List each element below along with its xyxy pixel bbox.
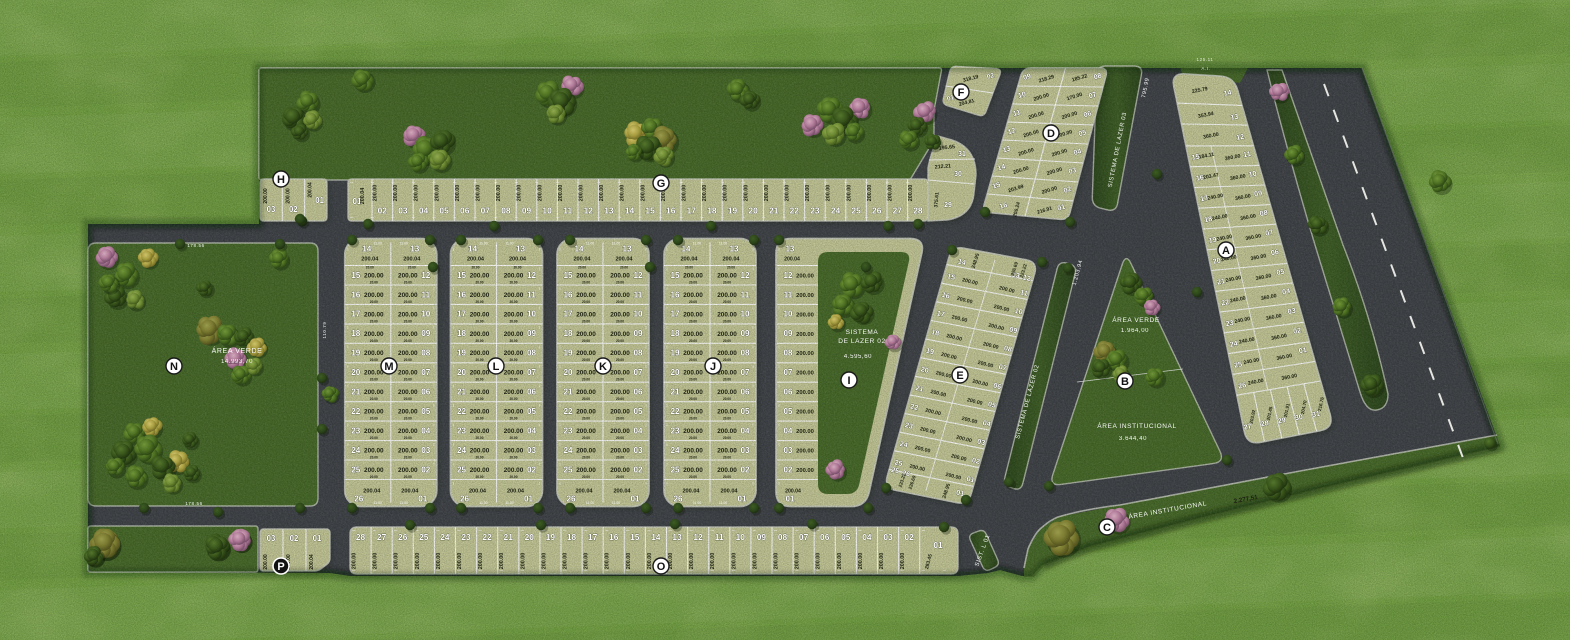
svg-text:20.00: 20.00 [404, 280, 412, 284]
svg-text:200.04: 200.04 [469, 489, 487, 495]
svg-text:10: 10 [633, 310, 643, 319]
svg-text:200.00: 200.00 [398, 409, 418, 416]
svg-text:4.595,60: 4.595,60 [844, 354, 872, 360]
svg-text:200.00: 200.00 [626, 553, 632, 570]
svg-text:200.00: 200.00 [499, 553, 505, 570]
svg-text:20.00: 20.00 [723, 280, 731, 284]
svg-text:27: 27 [377, 532, 387, 542]
svg-text:20.00: 20.00 [689, 397, 697, 401]
svg-text:200.00: 200.00 [576, 448, 596, 455]
svg-text:200.00: 200.00 [576, 389, 596, 396]
svg-text:200.00: 200.00 [478, 553, 484, 570]
svg-text:09: 09 [740, 329, 750, 338]
svg-text:06: 06 [527, 388, 537, 397]
svg-text:20.00: 20.00 [476, 300, 484, 304]
svg-text:20.00: 20.00 [582, 319, 590, 323]
svg-text:17: 17 [588, 532, 598, 542]
svg-text:200.00: 200.00 [517, 185, 523, 202]
svg-text:200.00: 200.00 [364, 292, 384, 299]
svg-text:20.00: 20.00 [689, 417, 697, 421]
svg-text:1.964,00: 1.964,00 [1121, 328, 1149, 334]
svg-text:13: 13 [729, 245, 739, 254]
svg-text:09: 09 [1253, 188, 1263, 198]
svg-text:20: 20 [563, 368, 573, 377]
svg-text:20.00: 20.00 [370, 456, 378, 460]
svg-text:200.00: 200.00 [504, 448, 524, 455]
svg-text:16: 16 [457, 290, 467, 299]
svg-text:20.00: 20.00 [476, 358, 484, 362]
svg-text:20.00: 20.00 [582, 300, 590, 304]
svg-text:01: 01 [524, 495, 534, 504]
svg-text:M: M [384, 361, 393, 373]
svg-text:21: 21 [670, 388, 680, 397]
svg-text:20.00: 20.00 [616, 358, 624, 362]
svg-text:20.00: 20.00 [723, 417, 731, 421]
svg-text:24: 24 [563, 446, 573, 455]
svg-text:200.00: 200.00 [717, 272, 737, 279]
svg-text:12: 12 [527, 271, 537, 280]
svg-text:06: 06 [820, 532, 830, 542]
svg-text:03: 03 [267, 205, 276, 214]
svg-text:20.00: 20.00 [616, 397, 624, 401]
svg-text:200.00: 200.00 [683, 272, 703, 279]
svg-text:24: 24 [1229, 339, 1239, 349]
svg-text:21: 21 [457, 388, 467, 397]
svg-text:10: 10 [421, 310, 431, 319]
svg-text:20.00: 20.00 [616, 417, 624, 421]
svg-text:200.00: 200.00 [470, 292, 490, 299]
svg-text:15: 15 [630, 532, 640, 542]
svg-text:20.00: 20.00 [616, 436, 624, 440]
svg-text:200.00: 200.00 [504, 428, 524, 435]
svg-text:200.00: 200.00 [476, 185, 482, 202]
svg-text:20.00: 20.00 [404, 397, 412, 401]
svg-text:200.00: 200.00 [858, 553, 864, 570]
svg-text:20.00: 20.00 [472, 266, 480, 270]
svg-text:01: 01 [418, 495, 428, 504]
svg-text:20.00: 20.00 [689, 319, 697, 323]
svg-text:200.00: 200.00 [415, 553, 421, 570]
svg-text:200.00: 200.00 [647, 553, 653, 570]
svg-text:06: 06 [1270, 247, 1280, 257]
svg-text:20.00: 20.00 [616, 456, 624, 460]
svg-text:06: 06 [784, 388, 793, 397]
svg-text:10: 10 [740, 310, 750, 319]
svg-text:02: 02 [527, 465, 537, 474]
svg-text:200.00: 200.00 [610, 467, 630, 474]
svg-text:20.00: 20.00 [582, 339, 590, 343]
svg-text:200.00: 200.00 [752, 553, 758, 570]
svg-text:200.00: 200.00 [846, 185, 852, 202]
svg-text:200.00: 200.00 [683, 428, 703, 435]
svg-text:200.00: 200.00 [504, 272, 524, 279]
svg-text:20.00: 20.00 [476, 397, 484, 401]
svg-text:200.00: 200.00 [398, 448, 418, 455]
svg-text:05: 05 [1276, 267, 1286, 277]
svg-text:200.00: 200.00 [888, 185, 894, 202]
svg-text:20.00: 20.00 [620, 266, 628, 270]
svg-text:13: 13 [622, 245, 632, 254]
svg-text:178.56: 178.56 [187, 243, 204, 248]
svg-text:02: 02 [740, 465, 750, 474]
svg-text:200.04: 200.04 [360, 188, 366, 205]
svg-text:20.00: 20.00 [723, 319, 731, 323]
svg-text:200.00: 200.00 [908, 185, 914, 202]
svg-text:11: 11 [527, 290, 536, 299]
svg-text:13: 13 [516, 245, 526, 254]
svg-text:15: 15 [457, 271, 467, 280]
svg-text:200.00: 200.00 [504, 331, 524, 338]
svg-text:03: 03 [633, 446, 643, 455]
svg-text:200.00: 200.00 [576, 272, 596, 279]
svg-text:O: O [657, 561, 666, 573]
svg-text:22: 22 [482, 532, 492, 542]
svg-text:200.00: 200.00 [470, 409, 490, 416]
svg-text:07: 07 [784, 368, 793, 377]
svg-text:04: 04 [740, 427, 750, 436]
svg-text:20.00: 20.00 [723, 397, 731, 401]
svg-text:13: 13 [1230, 112, 1240, 122]
svg-text:06: 06 [421, 388, 431, 397]
svg-text:03: 03 [527, 446, 537, 455]
svg-text:09: 09 [421, 329, 431, 338]
svg-text:200.04: 200.04 [363, 489, 381, 495]
svg-text:12: 12 [421, 271, 431, 280]
svg-text:20.00: 20.00 [510, 280, 518, 284]
svg-text:200.00: 200.00 [579, 185, 585, 202]
svg-text:22: 22 [457, 407, 467, 416]
svg-text:ÁREA INSTITUCIONAL: ÁREA INSTITUCIONAL [1097, 421, 1176, 430]
svg-text:20.00: 20.00 [723, 358, 731, 362]
svg-text:11.00: 11.00 [479, 242, 487, 246]
svg-text:200.00: 200.00 [610, 292, 630, 299]
svg-text:200.00: 200.00 [610, 350, 630, 357]
svg-text:200.00: 200.00 [710, 553, 716, 570]
svg-text:21: 21 [351, 388, 361, 397]
svg-text:200.00: 200.00 [610, 448, 630, 455]
svg-text:23: 23 [670, 427, 680, 436]
svg-text:F: F [958, 87, 965, 99]
svg-text:22: 22 [790, 206, 800, 216]
svg-text:20.00: 20.00 [404, 475, 412, 479]
svg-text:C: C [1103, 522, 1111, 534]
svg-text:200.00: 200.00 [683, 311, 703, 318]
svg-text:20.00: 20.00 [404, 436, 412, 440]
svg-text:20.00: 20.00 [689, 280, 697, 284]
svg-text:200.00: 200.00 [774, 553, 780, 570]
svg-text:22: 22 [351, 407, 361, 416]
svg-text:200.00: 200.00 [717, 448, 737, 455]
svg-text:20.00: 20.00 [689, 358, 697, 362]
svg-text:200.00: 200.00 [610, 370, 630, 377]
svg-text:11.00: 11.00 [374, 242, 382, 246]
svg-text:200.00: 200.00 [496, 185, 502, 202]
svg-text:22: 22 [670, 407, 680, 416]
svg-text:200.00: 200.00 [504, 389, 524, 396]
svg-text:08: 08 [501, 206, 511, 216]
svg-text:200.00: 200.00 [398, 350, 418, 357]
svg-text:20.00: 20.00 [616, 475, 624, 479]
svg-text:200.04: 200.04 [573, 257, 591, 263]
svg-text:200.00: 200.00 [434, 185, 440, 202]
svg-text:200.00: 200.00 [364, 331, 384, 338]
svg-text:K: K [599, 361, 607, 373]
svg-text:200.00: 200.00 [364, 370, 384, 377]
svg-text:200.04: 200.04 [309, 554, 315, 570]
svg-text:200.04: 200.04 [720, 489, 738, 495]
svg-text:200.04: 200.04 [467, 257, 485, 263]
svg-text:200.00: 200.00 [640, 185, 646, 202]
svg-text:A.I.: A.I. [1201, 66, 1210, 71]
svg-text:23: 23 [563, 427, 573, 436]
svg-text:20.00: 20.00 [404, 358, 412, 362]
svg-text:200.00: 200.00 [683, 331, 703, 338]
svg-text:20.00: 20.00 [514, 266, 522, 270]
svg-text:3.644,40: 3.644,40 [1119, 436, 1147, 442]
svg-text:20.00: 20.00 [689, 456, 697, 460]
svg-text:20.00: 20.00 [408, 266, 416, 270]
svg-text:05: 05 [841, 532, 851, 542]
svg-text:20.00: 20.00 [370, 319, 378, 323]
svg-text:20.00: 20.00 [476, 417, 484, 421]
svg-text:03: 03 [1287, 306, 1297, 316]
svg-text:19: 19 [670, 349, 680, 358]
svg-text:200.00: 200.00 [263, 554, 269, 570]
svg-text:200.00: 200.00 [541, 553, 547, 570]
svg-text:20.00: 20.00 [689, 475, 697, 479]
svg-text:20.00: 20.00 [476, 280, 484, 284]
svg-text:200.00: 200.00 [576, 311, 596, 318]
svg-text:05: 05 [633, 407, 643, 416]
svg-text:200.00: 200.00 [470, 448, 490, 455]
svg-text:23: 23 [810, 206, 820, 216]
svg-text:200.00: 200.00 [702, 185, 708, 202]
svg-text:200.00: 200.00 [393, 185, 399, 202]
svg-text:07: 07 [799, 532, 809, 542]
svg-text:N: N [170, 361, 178, 373]
svg-text:15: 15 [670, 271, 680, 280]
svg-text:200.00: 200.00 [398, 467, 418, 474]
svg-text:200.00: 200.00 [717, 409, 737, 416]
svg-text:200.04: 200.04 [509, 257, 527, 263]
svg-text:20.00: 20.00 [582, 280, 590, 284]
svg-text:26: 26 [566, 495, 576, 504]
svg-text:25: 25 [1233, 359, 1243, 369]
svg-text:200.00: 200.00 [398, 331, 418, 338]
svg-text:J: J [710, 361, 716, 373]
svg-text:200.00: 200.00 [610, 428, 630, 435]
svg-text:200.00: 200.00 [717, 428, 737, 435]
svg-text:09: 09 [784, 329, 793, 338]
svg-text:12: 12 [1235, 132, 1245, 142]
svg-text:200.00: 200.00 [683, 370, 703, 377]
svg-text:01: 01 [737, 495, 747, 504]
svg-text:12: 12 [633, 271, 643, 280]
svg-text:200.00: 200.00 [796, 312, 814, 318]
svg-text:21: 21 [769, 206, 779, 216]
svg-text:20.00: 20.00 [476, 456, 484, 460]
svg-text:200.00: 200.00 [394, 553, 400, 570]
svg-text:20.00: 20.00 [370, 339, 378, 343]
svg-text:08: 08 [778, 532, 788, 542]
svg-text:200.00: 200.00 [263, 188, 269, 204]
svg-text:E: E [956, 370, 963, 382]
svg-text:20.00: 20.00 [723, 300, 731, 304]
svg-text:200.00: 200.00 [576, 331, 596, 338]
svg-text:ÁREA VERDE: ÁREA VERDE [1112, 315, 1160, 324]
svg-text:04: 04 [784, 427, 793, 436]
svg-text:200.00: 200.00 [373, 185, 379, 202]
svg-text:12: 12 [584, 206, 594, 216]
svg-text:31: 31 [958, 151, 966, 158]
svg-text:200.00: 200.00 [796, 429, 814, 435]
svg-text:20.00: 20.00 [723, 436, 731, 440]
svg-text:24: 24 [440, 532, 450, 542]
svg-text:07: 07 [527, 368, 537, 377]
svg-text:20.00: 20.00 [582, 397, 590, 401]
svg-text:12: 12 [740, 271, 750, 280]
svg-text:200.00: 200.00 [414, 185, 420, 202]
svg-text:11: 11 [421, 290, 430, 299]
svg-text:12: 12 [784, 271, 793, 280]
svg-text:16: 16 [666, 206, 676, 216]
svg-text:05: 05 [740, 407, 750, 416]
svg-text:200.00: 200.00 [796, 351, 814, 357]
svg-text:09: 09 [757, 532, 767, 542]
svg-text:18: 18 [563, 329, 573, 338]
svg-text:10: 10 [784, 310, 793, 319]
svg-text:200.00: 200.00 [504, 409, 524, 416]
svg-text:20.00: 20.00 [582, 358, 590, 362]
svg-text:DE LAZER 02: DE LAZER 02 [838, 338, 885, 345]
svg-text:200.00: 200.00 [398, 389, 418, 396]
svg-text:200.00: 200.00 [576, 350, 596, 357]
svg-text:11.00: 11.00 [719, 242, 727, 246]
svg-text:200.00: 200.00 [558, 185, 564, 202]
svg-text:16: 16 [670, 290, 680, 299]
svg-text:200.00: 200.00 [576, 428, 596, 435]
svg-text:23: 23 [457, 427, 467, 436]
svg-text:200.04: 200.04 [308, 182, 314, 198]
svg-text:200.00: 200.00 [717, 350, 737, 357]
svg-text:200.04: 200.04 [682, 489, 700, 495]
svg-text:02: 02 [633, 465, 643, 474]
svg-text:20.00: 20.00 [404, 417, 412, 421]
svg-text:178.56: 178.56 [185, 501, 202, 506]
svg-text:20.00: 20.00 [689, 339, 697, 343]
svg-text:200.00: 200.00 [796, 273, 814, 279]
svg-text:20.00: 20.00 [689, 378, 697, 382]
svg-text:200.00: 200.00 [683, 389, 703, 396]
svg-text:200.00: 200.00 [717, 389, 737, 396]
svg-text:17: 17 [670, 310, 680, 319]
svg-text:200.00: 200.00 [816, 553, 822, 570]
svg-text:04: 04 [419, 206, 429, 216]
svg-text:11.00: 11.00 [400, 501, 408, 505]
svg-text:21: 21 [504, 532, 514, 542]
svg-text:04: 04 [1281, 286, 1291, 296]
svg-text:09: 09 [633, 329, 643, 338]
svg-text:25: 25 [419, 532, 429, 542]
svg-text:200.04: 200.04 [613, 489, 631, 495]
svg-text:125.11: 125.11 [1196, 57, 1213, 62]
svg-text:200.00: 200.00 [717, 311, 737, 318]
svg-text:200.00: 200.00 [576, 370, 596, 377]
svg-text:20.00: 20.00 [582, 378, 590, 382]
svg-text:H: H [277, 174, 285, 186]
svg-text:17: 17 [457, 310, 467, 319]
svg-text:11: 11 [741, 290, 750, 299]
svg-text:200.00: 200.00 [743, 185, 749, 202]
svg-text:18: 18 [351, 329, 361, 338]
svg-text:200.00: 200.00 [470, 428, 490, 435]
svg-text:20.00: 20.00 [370, 397, 378, 401]
svg-text:26: 26 [872, 206, 882, 216]
svg-text:20.00: 20.00 [476, 378, 484, 382]
svg-text:200.00: 200.00 [717, 331, 737, 338]
svg-text:200.00: 200.00 [683, 448, 703, 455]
svg-text:01: 01 [630, 495, 640, 504]
svg-text:26: 26 [460, 495, 470, 504]
svg-text:24: 24 [457, 446, 467, 455]
svg-text:200.00: 200.00 [504, 350, 524, 357]
svg-text:30: 30 [954, 171, 962, 178]
svg-text:20.00: 20.00 [689, 300, 697, 304]
svg-text:212.21: 212.21 [935, 163, 952, 170]
svg-text:02: 02 [421, 465, 431, 474]
svg-text:200.00: 200.00 [717, 467, 737, 474]
svg-text:20.00: 20.00 [404, 378, 412, 382]
svg-text:20.00: 20.00 [582, 436, 590, 440]
svg-text:11.00: 11.00 [479, 501, 487, 505]
svg-text:25: 25 [670, 465, 680, 474]
svg-text:20.00: 20.00 [582, 456, 590, 460]
svg-text:20.00: 20.00 [370, 436, 378, 440]
svg-text:200.00: 200.00 [457, 553, 463, 570]
svg-text:200.00: 200.00 [398, 272, 418, 279]
svg-text:14: 14 [651, 532, 661, 542]
svg-text:19: 19 [728, 206, 738, 216]
svg-text:200.00: 200.00 [605, 553, 611, 570]
svg-text:200.00: 200.00 [785, 185, 791, 202]
svg-text:200.00: 200.00 [599, 185, 605, 202]
svg-text:25: 25 [563, 465, 573, 474]
svg-text:20.00: 20.00 [685, 266, 693, 270]
svg-text:I: I [847, 375, 850, 387]
svg-text:200.00: 200.00 [364, 409, 384, 416]
svg-text:17: 17 [351, 310, 361, 319]
svg-text:20.00: 20.00 [578, 266, 586, 270]
svg-text:15: 15 [351, 271, 361, 280]
svg-text:200.00: 200.00 [879, 553, 885, 570]
svg-text:03: 03 [267, 534, 276, 543]
svg-text:200.00: 200.00 [470, 370, 490, 377]
svg-text:23: 23 [461, 532, 471, 542]
svg-text:20.00: 20.00 [370, 300, 378, 304]
svg-text:200.00: 200.00 [683, 350, 703, 357]
svg-text:20.00: 20.00 [476, 319, 484, 323]
svg-text:18: 18 [567, 532, 577, 542]
svg-text:11.00: 11.00 [586, 242, 594, 246]
svg-text:20.00: 20.00 [616, 280, 624, 284]
svg-text:200.00: 200.00 [796, 293, 814, 299]
svg-text:01: 01 [786, 495, 795, 504]
svg-text:19: 19 [351, 349, 361, 358]
svg-text:07: 07 [421, 368, 431, 377]
svg-text:10: 10 [527, 310, 537, 319]
svg-text:16: 16 [563, 290, 573, 299]
svg-text:200.00: 200.00 [683, 292, 703, 299]
